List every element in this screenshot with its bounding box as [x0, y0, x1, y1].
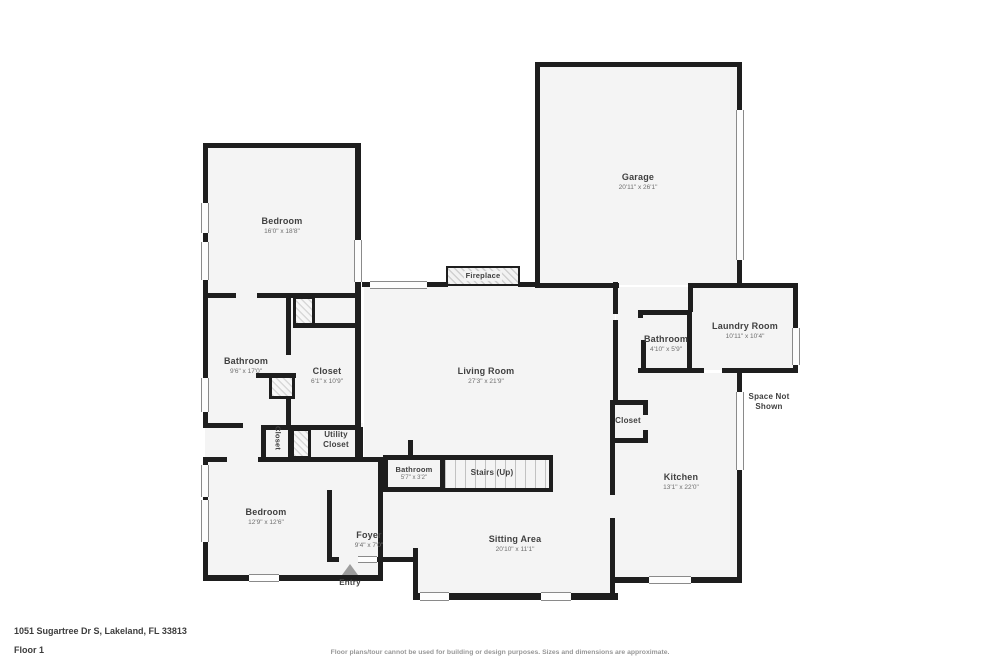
label-space-not-shown: Space Not Shown [736, 392, 802, 412]
room-name: Utility Closet [313, 430, 359, 450]
wall [610, 443, 615, 495]
room-name: Bathroom [644, 334, 688, 345]
wall [722, 368, 798, 373]
room-label-bedroom-top: Bedroom 16'0" x 18'8" [262, 216, 303, 236]
room-name: Closet [311, 366, 343, 377]
wall [638, 310, 643, 318]
wall [737, 62, 742, 110]
room-label-foyer: Foyer 9'4" x 7'0" [355, 530, 383, 550]
wall [203, 143, 361, 148]
window [201, 242, 209, 280]
wall [535, 283, 619, 288]
window [201, 203, 209, 233]
room-name: Living Room [458, 366, 515, 377]
address-text: 1051 Sugartree Dr S, Lakeland, FL 33813 [14, 626, 187, 636]
room-name: Laundry Room [712, 321, 778, 332]
wall [737, 260, 742, 288]
room-dims: 13'1" x 22'0" [663, 484, 699, 492]
window [201, 378, 209, 412]
wall [427, 282, 448, 287]
wall [286, 298, 291, 355]
room-label-kitchen: Kitchen 13'1" x 22'0" [663, 472, 699, 492]
room-label-stairs: Stairs (Up) [471, 468, 514, 478]
room-label-closet-main: Closet 6'1" x 10'9" [311, 366, 343, 386]
room-name: Closet [273, 426, 282, 450]
window [201, 465, 209, 497]
room-dims: 20'11" x 26'1" [619, 184, 658, 192]
room-label-closet-kitchen: Closet [615, 416, 641, 426]
window [792, 328, 800, 365]
hatched-fixture [293, 296, 315, 326]
room-dims: 10'11" x 10'4" [712, 333, 778, 341]
room-dims: 12'9" x 12'6" [246, 519, 287, 527]
wall [643, 430, 648, 443]
window [541, 592, 571, 601]
wall [535, 62, 742, 67]
room-label-laundry-room: Laundry Room 10'11" x 10'4" [712, 321, 778, 341]
room-name: Foyer [355, 530, 383, 541]
wall [408, 440, 413, 458]
room-label-closet-small: Closet [273, 426, 282, 450]
room-name: Bathroom [224, 356, 268, 367]
room-dims: 9'4" x 7'0" [355, 542, 383, 550]
wall [258, 457, 383, 462]
room-name: Bedroom [262, 216, 303, 227]
room-dims: 5'7" x 3'2" [395, 475, 432, 482]
room-name: Entry [339, 578, 360, 588]
wall [613, 320, 618, 402]
room-name: Stairs (Up) [471, 468, 514, 478]
room-dims: 20'10" x 11'1" [489, 546, 542, 554]
wall [638, 368, 704, 373]
room-name: Bedroom [246, 507, 287, 518]
window [358, 556, 377, 563]
room-name: Bathroom [395, 465, 432, 474]
entry-label: Entry [339, 578, 360, 588]
room-dims: 4'10" x 5'9" [644, 346, 688, 354]
floor-plan: Fireplace Garage 20'11" x 26'1" Bedroom … [0, 0, 1000, 667]
room-label-living-room: Living Room 27'3" x 21'9" [458, 366, 515, 386]
wall [610, 518, 615, 599]
window [370, 281, 427, 289]
window [354, 240, 362, 282]
fireplace-label: Fireplace [464, 271, 503, 280]
wall [737, 373, 742, 392]
room-name: Kitchen [663, 472, 699, 483]
window [736, 110, 744, 260]
room-dims: 6'1" x 10'9" [311, 378, 343, 386]
floor-label: Floor 1 [14, 645, 44, 655]
disclaimer-text: Floor plans/tour cannot be used for buil… [331, 649, 670, 656]
window [420, 592, 449, 601]
wall [737, 470, 742, 583]
room-label-sitting-area: Sitting Area 20'10" x 11'1" [489, 534, 542, 554]
wall [688, 288, 693, 312]
window [249, 574, 279, 582]
room-label-bathroom-left: Bathroom 9'6" x 17'0" [224, 356, 268, 376]
fireplace: Fireplace [446, 266, 520, 286]
room-name: Garage [619, 172, 658, 183]
room-label-garage: Garage 20'11" x 26'1" [619, 172, 658, 192]
wall [793, 365, 798, 373]
wall [413, 548, 418, 599]
room-dims: 16'0" x 18'8" [262, 228, 303, 236]
room-label-bedroom-bottom: Bedroom 12'9" x 12'6" [246, 507, 287, 527]
room-label-bathroom-right: Bathroom 4'10" x 5'9" [644, 334, 688, 354]
wall [793, 283, 798, 328]
room-name: Space Not Shown [736, 392, 802, 412]
wall [327, 490, 332, 562]
wall [643, 400, 648, 415]
wall [383, 457, 388, 489]
wall [261, 427, 266, 460]
room-name: Sitting Area [489, 534, 542, 545]
shower-fixture [269, 375, 295, 399]
room-name: Closet [615, 416, 641, 426]
room-dims: 9'6" x 17'0" [224, 368, 268, 376]
wall [613, 282, 618, 314]
room-dims: 27'3" x 21'9" [458, 378, 515, 386]
window [649, 576, 691, 584]
wall [203, 423, 243, 428]
wall [535, 62, 540, 288]
wall [355, 143, 361, 457]
entry-arrow-icon [342, 564, 358, 575]
wall [638, 310, 692, 315]
window [201, 500, 209, 542]
hatched-fixture [291, 428, 311, 459]
wall [688, 283, 798, 288]
room-label-bathroom-center: Bathroom 5'7" x 3'2" [395, 465, 432, 483]
room-label-utility-closet: Utility Closet [313, 430, 359, 450]
